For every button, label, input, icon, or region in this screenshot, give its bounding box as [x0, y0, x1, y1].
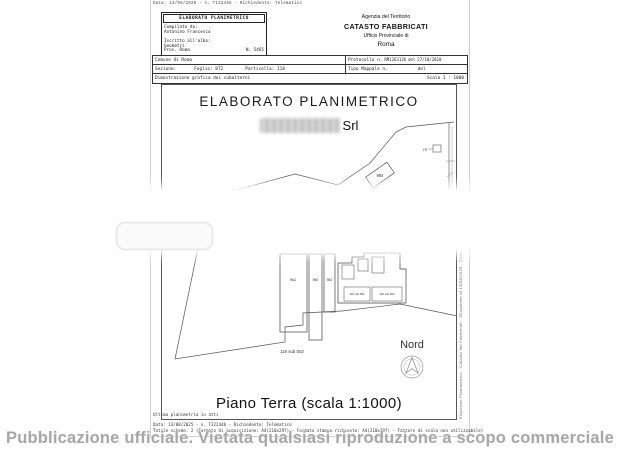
- parcel-984-label: 984: [377, 173, 385, 178]
- north-label: Nord: [400, 339, 424, 351]
- redacted-company-name: [260, 118, 340, 133]
- redaction-outline: [116, 222, 213, 250]
- comune-cell: Comune di Roma: [153, 56, 346, 64]
- protocollo-label: Protocollo n.: [348, 58, 382, 63]
- info-row-foglio: Sezione: Foglio: 872 Particella: 118 Tip…: [153, 65, 467, 74]
- protocollo-del: del: [408, 57, 415, 62]
- prov-label: Prov. Roma: [164, 48, 190, 53]
- parcel-79-label: 79: [423, 147, 428, 152]
- numero-label: N. 5465: [246, 48, 264, 53]
- compiler-box: ELABORATO PLANIMETRICO Compilato da: Ant…: [161, 12, 267, 56]
- side-caption: Elaborato Planimetrico - Catasto dei Fab…: [458, 84, 463, 419]
- company-suffix: Srl: [343, 118, 359, 133]
- agency-header: Agenzia del Territorio CATASTO FABBRICAT…: [307, 14, 465, 50]
- agency-line4: Roma: [307, 40, 465, 50]
- company-row: Srl: [162, 118, 456, 133]
- info-table: Comune di Roma Protocollo n. RM1263126 d…: [152, 55, 468, 84]
- ultima-note: Ultima planimetria in atti: [153, 412, 219, 417]
- agency-line3: Ufficio Provinciale di: [307, 33, 465, 41]
- particella-label: Particella: 118: [245, 67, 285, 72]
- agency-line2: CATASTO FABBRICATI: [307, 22, 465, 33]
- compiler-box-title: ELABORATO PLANIMETRICO: [163, 14, 265, 23]
- plan-frame: ELABORATO PLANIMETRICO Srl 984: [161, 84, 457, 420]
- building-960: [309, 254, 322, 340]
- building-962: [324, 254, 335, 312]
- document-page: Data: 13/08/2025 - n. T122446 - Richiede…: [150, 0, 470, 437]
- compiler-box-footer: Prov. Roma N. 5465: [164, 48, 264, 53]
- agency-line1: Agenzia del Territorio: [307, 14, 465, 22]
- dimostrazione-label: Dimostrazione grafica dei subalterni: [155, 76, 250, 81]
- cadastral-map: 984 79 961 960 962 118: [162, 85, 456, 419]
- cluster-cell-c: [372, 257, 384, 273]
- compiler-box-body: Compilato da: Antonino Francesco Iscritt…: [162, 24, 266, 50]
- sezione-label: Sezione:: [155, 67, 176, 72]
- foglio-label: Foglio: 872: [194, 67, 223, 72]
- cluster-sub2-label: 118 sub 503: [379, 292, 395, 296]
- building-961-label: 961: [290, 278, 296, 282]
- sub502-label: 118 sub 502: [280, 349, 304, 354]
- building-962-label: 962: [327, 278, 333, 282]
- cluster-sub1-label: 118 sub 501: [349, 292, 365, 296]
- info-row-dimostrazione: Dimostrazione grafica dei subalterni Sca…: [153, 74, 467, 83]
- protocollo-value: RM1263126: [384, 57, 406, 62]
- protocollo-cell: Protocollo n. RM1263126 del 27/10/2010: [346, 58, 467, 63]
- protocollo-date: 27/10/2010: [417, 57, 441, 62]
- foglio-cell: Sezione: Foglio: 872 Particella: 118: [153, 65, 346, 73]
- building-960-label: 960: [313, 278, 319, 282]
- plan-title: ELABORATO PLANIMETRICO: [162, 94, 456, 109]
- boundary-line-upper: [210, 122, 454, 197]
- floor-caption: Piano Terra (scala 1:1000): [162, 395, 456, 412]
- cluster-cell-a: [342, 265, 354, 279]
- document-topline: Data: 13/08/2025 - n. T122446 - Richiede…: [153, 2, 302, 6]
- tipo-mappale-label: Tipo Mappale n.: [348, 67, 388, 72]
- info-row-comune: Comune di Roma Protocollo n. RM1263126 d…: [153, 56, 467, 65]
- compass-icon: [401, 356, 423, 378]
- footer-data-line: Data: 13/08/2025 - n. T122446 - Richiede…: [153, 422, 292, 427]
- cluster-cell-b: [358, 259, 368, 271]
- scala-label: Scala 1 : 1000: [427, 76, 464, 81]
- tipo-mappale-cell: Tipo Mappale n. del: [346, 67, 467, 72]
- official-watermark: Pubblicazione ufficiale. Vietata qualsia…: [0, 429, 620, 448]
- screenshot-canvas: Data: 13/08/2025 - n. T122446 - Richiede…: [0, 0, 620, 450]
- parcel-79-shape: [433, 145, 441, 152]
- tipo-mappale-del: del: [418, 67, 426, 72]
